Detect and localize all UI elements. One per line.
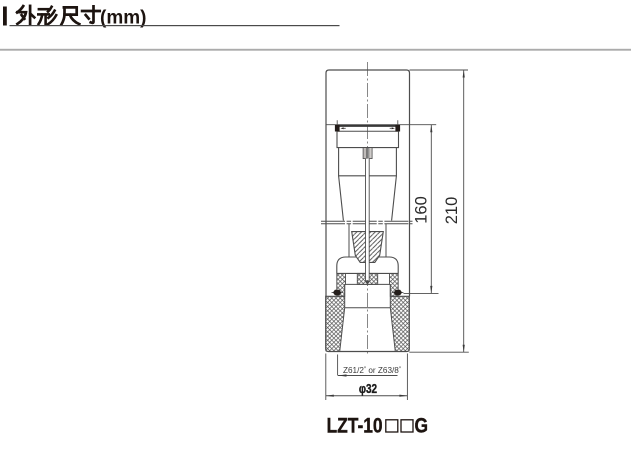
svg-text:G: G	[415, 415, 429, 438]
svg-text:210: 210	[443, 197, 461, 225]
svg-text:φ32: φ32	[359, 383, 377, 396]
svg-text:Z61/2″ or Z63/8″: Z61/2″ or Z63/8″	[343, 366, 402, 375]
svg-text:160: 160	[412, 196, 430, 224]
svg-text:LZT-10: LZT-10	[326, 415, 382, 438]
